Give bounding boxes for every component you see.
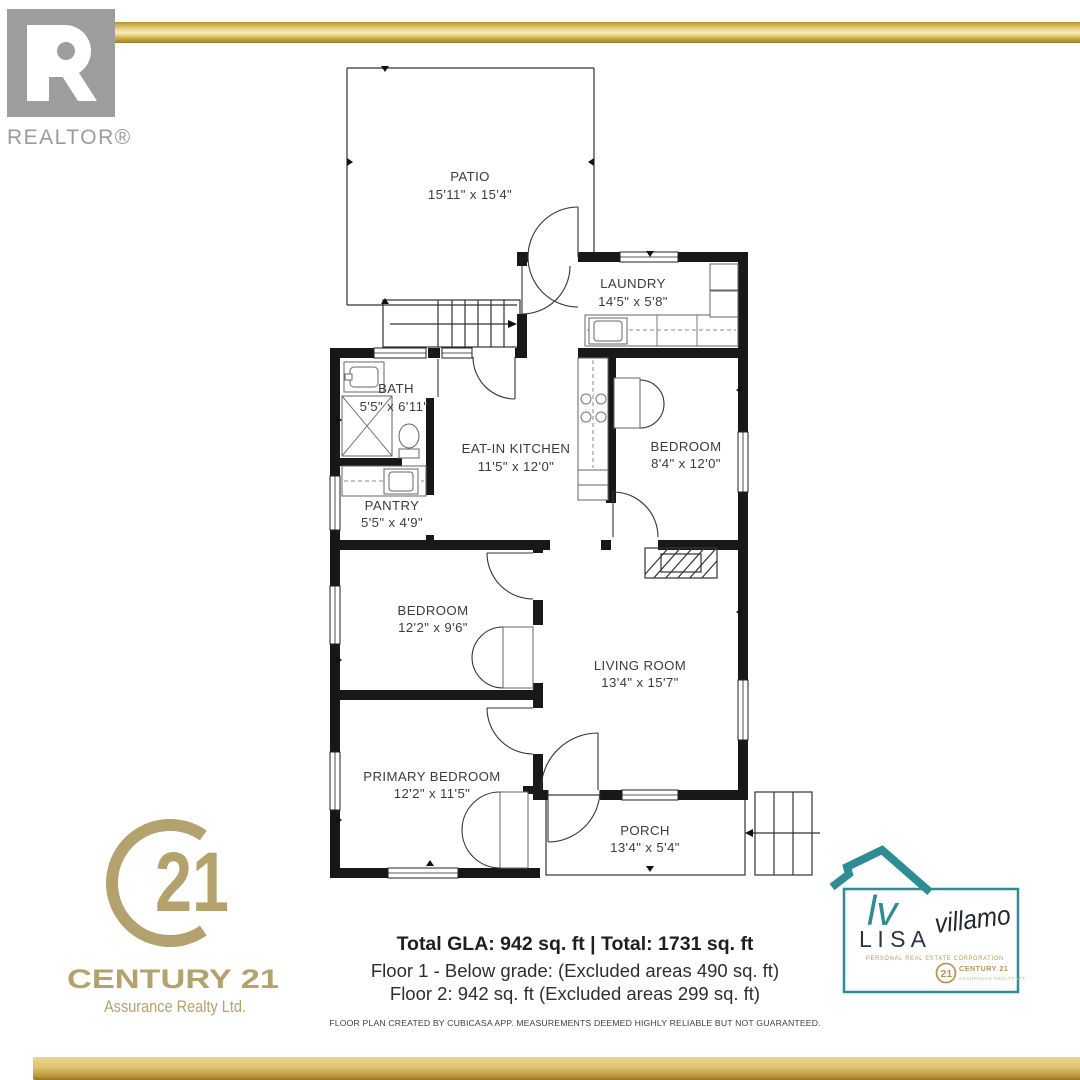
area-summary: Total GLA: 942 sq. ft | Total: 1731 sq. …: [300, 933, 850, 1028]
realtor-wordmark: REALTOR®: [7, 126, 137, 150]
mini-c21-subtitle: ASSURANCE REALTY LTD.: [959, 976, 1025, 982]
gold-bar-bottom: [33, 1057, 1080, 1080]
stair-direction-arrow: [508, 320, 517, 328]
agent-logo: lv L I S A villamo PERSONAL REAL ESTATE …: [823, 843, 1025, 1001]
kitchen-fixtures: [578, 358, 608, 500]
room-label-living: LIVING ROOM 13'4" x 15'7": [594, 658, 686, 690]
total-area-line: Total GLA: 942 sq. ft | Total: 1731 sq. …: [300, 933, 850, 956]
century21-emblem-number: 21: [155, 835, 229, 929]
svg-text:5'5" x 4'9": 5'5" x 4'9": [361, 515, 423, 530]
disclaimer: FLOOR PLAN CREATED BY CUBICASA APP. MEAS…: [300, 1018, 850, 1028]
room-labels: PATIO 15'11" x 15'4" LAUNDRY 14'5" x 5'8…: [360, 169, 722, 855]
porch-steps-arrow: [745, 829, 753, 837]
gold-bar-top: [35, 22, 1080, 43]
svg-text:14'5" x 5'8": 14'5" x 5'8": [598, 294, 668, 309]
svg-text:LIVING ROOM: LIVING ROOM: [594, 658, 686, 673]
agent-tagline: PERSONAL REAL ESTATE CORPORATION: [866, 955, 1004, 962]
room-label-primary: PRIMARY BEDROOM 12'2" x 11'5": [363, 769, 500, 801]
house-roof-icon: [832, 850, 930, 892]
floorplan: PATIO 15'11" x 15'4" LAUNDRY 14'5" x 5'8…: [325, 55, 825, 890]
svg-text:11'5" x 12'0": 11'5" x 12'0": [478, 459, 555, 474]
floor1-line: Floor 1 - Below grade: (Excluded areas 4…: [300, 959, 850, 982]
svg-text:PANTRY: PANTRY: [365, 498, 420, 513]
svg-text:BEDROOM: BEDROOM: [651, 439, 722, 454]
svg-text:13'4" x 15'7": 13'4" x 15'7": [601, 675, 679, 690]
svg-text:PATIO: PATIO: [450, 169, 490, 184]
century21-wordmark: CENTURY 21: [67, 964, 279, 994]
room-label-patio: PATIO 15'11" x 15'4": [428, 169, 512, 202]
svg-text:8'4" x 12'0": 8'4" x 12'0": [651, 456, 721, 471]
svg-text:LAUNDRY: LAUNDRY: [600, 276, 666, 291]
staircase: [383, 300, 520, 347]
room-label-kitchen: EAT-IN KITCHEN 11'5" x 12'0": [462, 441, 571, 474]
svg-text:13'4" x 5'4": 13'4" x 5'4": [610, 840, 680, 855]
room-label-porch: PORCH 13'4" x 5'4": [610, 823, 680, 855]
realtor-r-icon: [7, 9, 115, 117]
svg-text:15'11" x 15'4": 15'11" x 15'4": [428, 187, 512, 202]
svg-text:5'5" x 6'11": 5'5" x 6'11": [360, 399, 429, 414]
floor2-line: Floor 2: 942 sq. ft (Excluded areas 299 …: [300, 982, 850, 1005]
century21-logo: 21 CENTURY 21 Assurance Realty Ltd.: [62, 800, 284, 1022]
mini-c21-number: 21: [941, 968, 953, 980]
svg-text:PRIMARY BEDROOM: PRIMARY BEDROOM: [363, 769, 500, 784]
realtor-logo: REALTOR®: [7, 9, 137, 150]
floorplan-page: REALTOR®: [0, 0, 1080, 1080]
porch-outline: [546, 792, 820, 875]
room-label-bedroom-ne: BEDROOM 8'4" x 12'0": [651, 439, 722, 471]
room-label-bedroom-w: BEDROOM 12'2" x 9'6": [398, 603, 469, 635]
svg-text:BEDROOM: BEDROOM: [398, 603, 469, 618]
svg-text:12'2" x 9'6": 12'2" x 9'6": [398, 620, 468, 635]
svg-text:BATH: BATH: [378, 381, 414, 396]
room-label-pantry: PANTRY 5'5" x 4'9": [361, 498, 423, 530]
svg-text:12'2" x 11'5": 12'2" x 11'5": [394, 786, 471, 801]
svg-text:PORCH: PORCH: [620, 823, 670, 838]
mini-c21-wordmark: CENTURY 21: [959, 964, 1008, 973]
room-label-laundry: LAUNDRY 14'5" x 5'8": [598, 276, 668, 309]
svg-text:EAT-IN KITCHEN: EAT-IN KITCHEN: [462, 441, 571, 456]
pantry-fixtures: [342, 466, 426, 496]
agent-first-name: L I S A: [859, 926, 927, 952]
century21-subtitle: Assurance Realty Ltd.: [104, 998, 246, 1016]
